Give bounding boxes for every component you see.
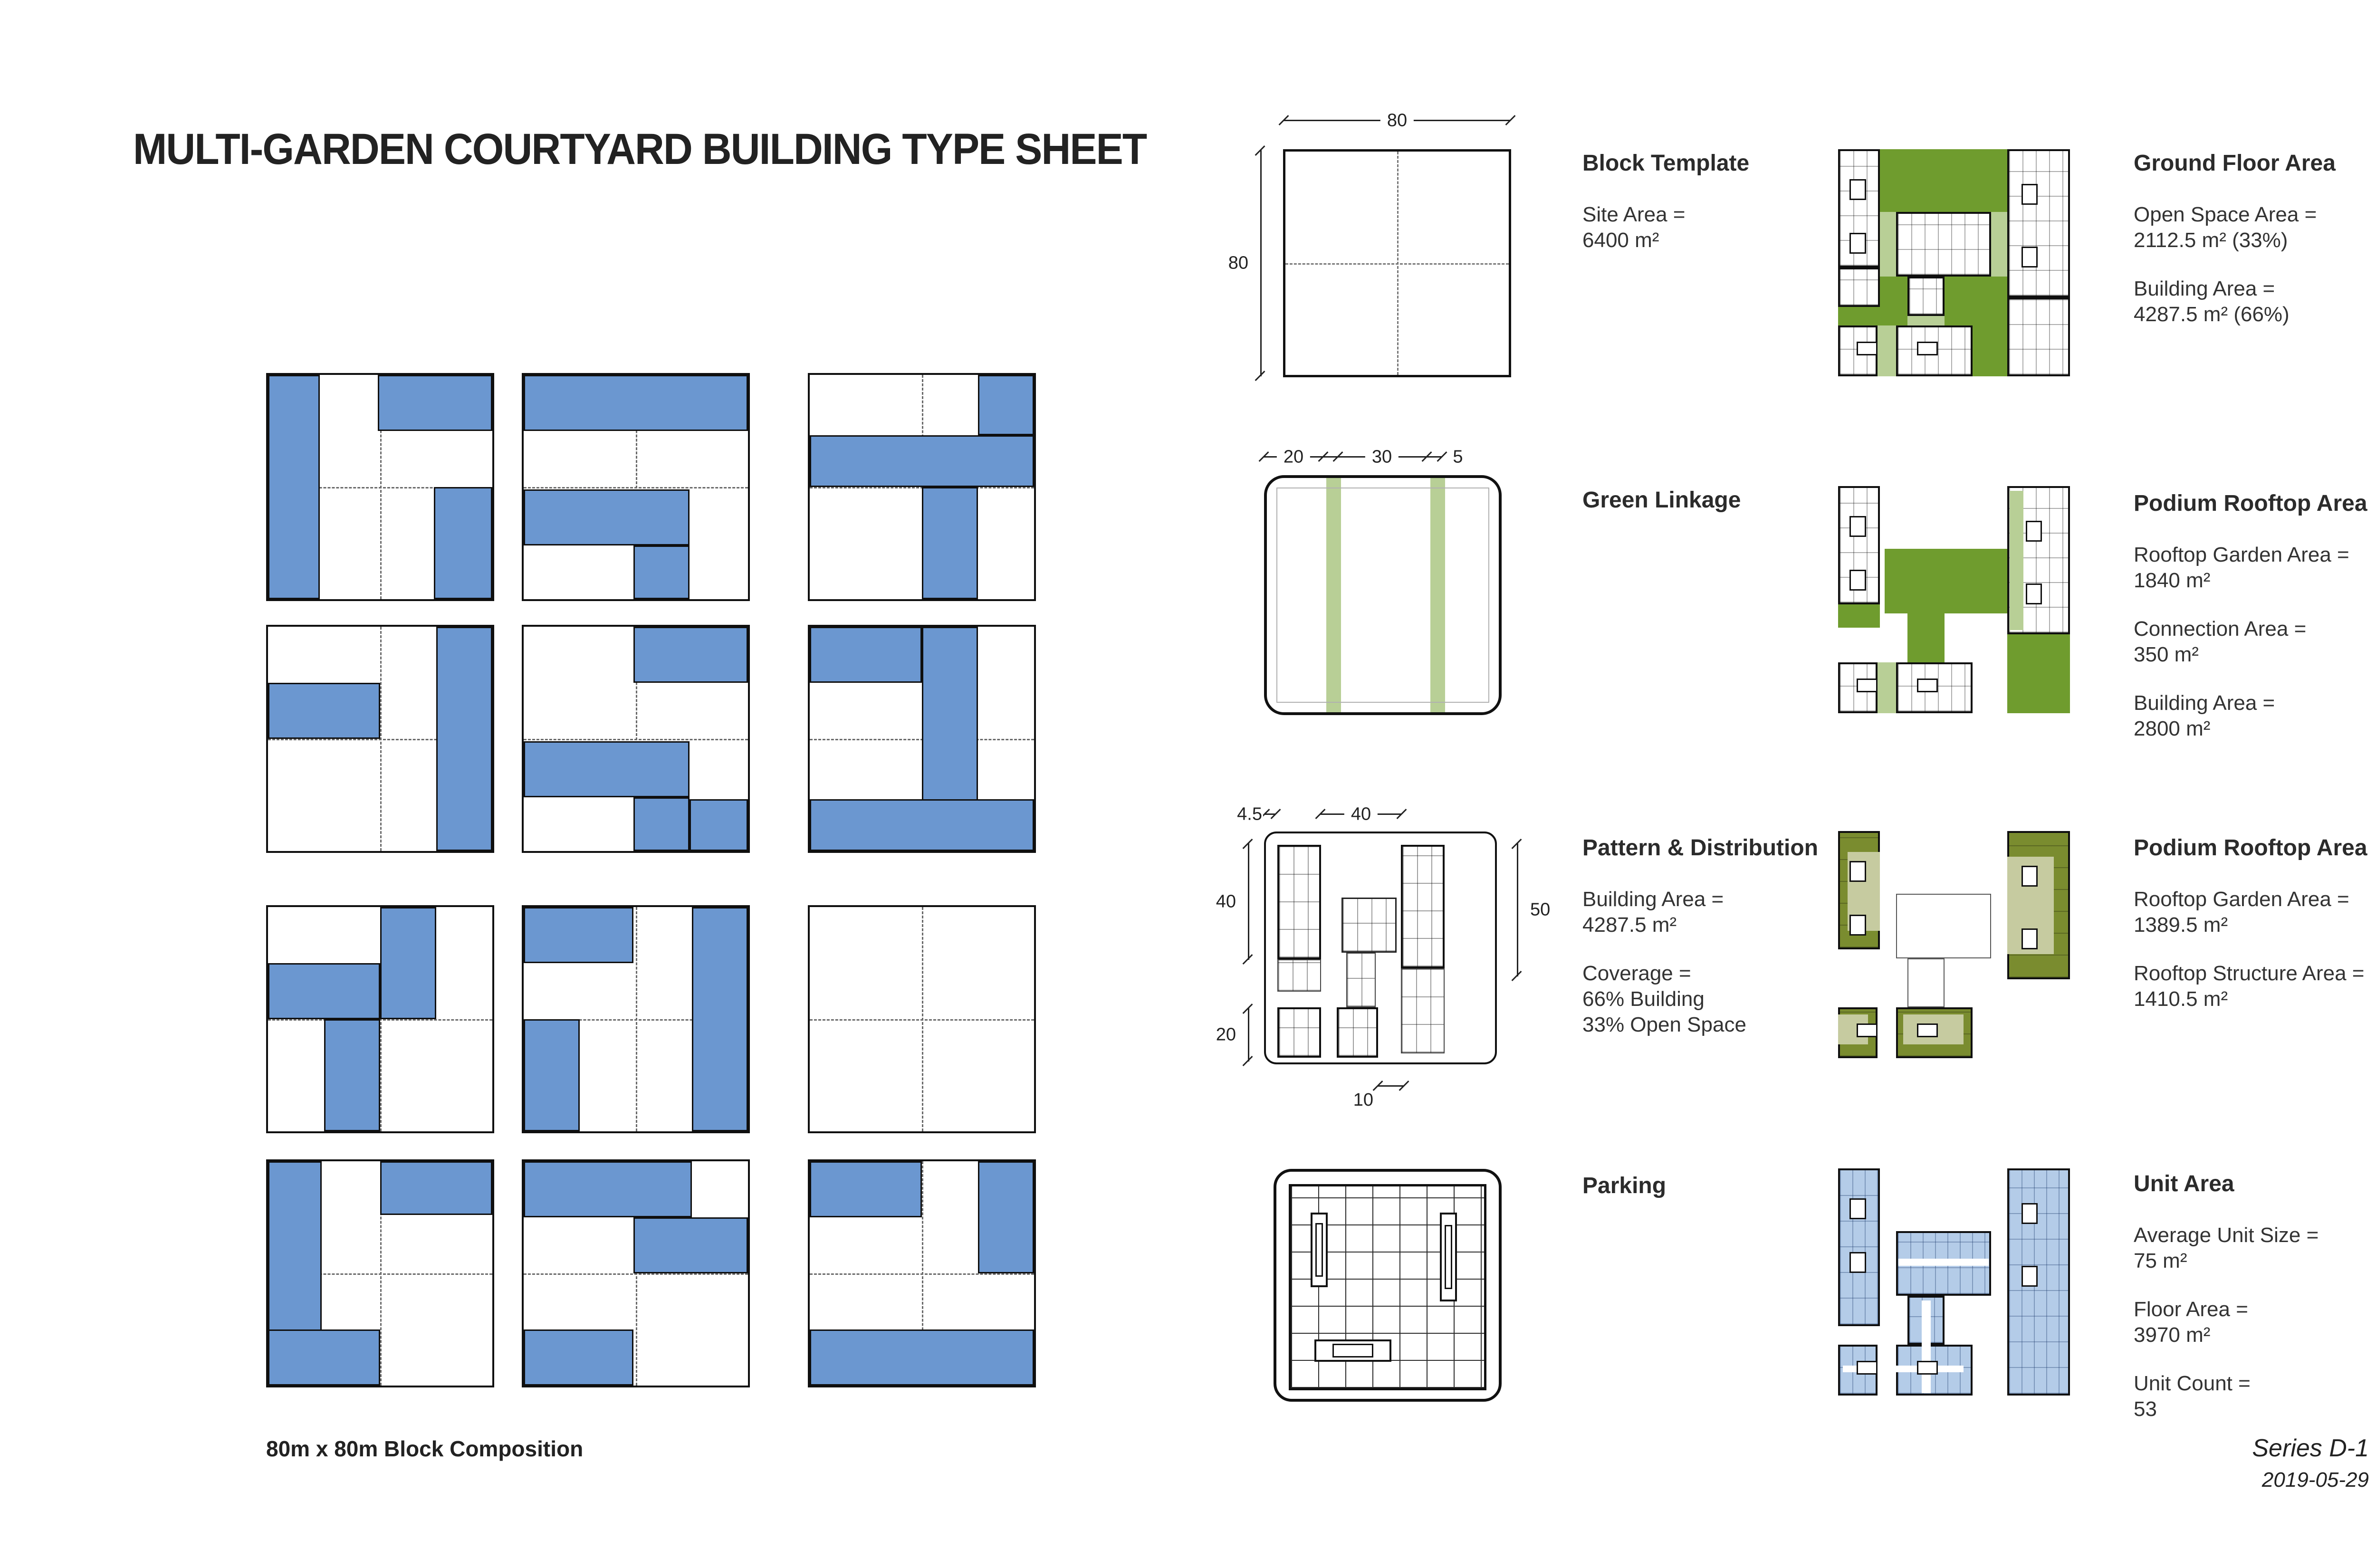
building-footprint	[524, 1161, 692, 1217]
building-footprint	[810, 627, 922, 683]
plan-rect-core	[1917, 342, 1938, 355]
plan-rect-core	[2022, 247, 2038, 268]
dimension-line: 80	[1260, 150, 1262, 376]
panel-title: Podium Rooftop Area	[2134, 490, 2376, 516]
plan-rect-pfb	[1277, 845, 1321, 959]
plan-rect-pft	[1346, 953, 1376, 1008]
building-footprint	[436, 627, 492, 851]
plan-rect-core	[1849, 1252, 1866, 1273]
building-footprint	[434, 487, 492, 599]
dimension-label: 80	[1380, 110, 1414, 131]
text-group: Connection Area =350 m²	[2134, 616, 2376, 668]
plan-rect-core	[2026, 521, 2042, 542]
dimension-line: 20 30 5	[1264, 456, 1442, 458]
plan-rect-pfb	[1401, 845, 1445, 968]
type-sheet: MULTI-GARDEN COURTYARD BUILDING TYPE SHE…	[0, 0, 2376, 1568]
dimension-line: 40	[1321, 813, 1401, 815]
building-footprint	[524, 489, 690, 545]
plan-rect-outline	[1896, 894, 1991, 959]
parking-core-detail	[1445, 1225, 1452, 1290]
parking-core-detail	[1315, 1223, 1323, 1277]
building-footprint	[524, 1019, 580, 1131]
building-footprint	[978, 375, 1034, 435]
block-tile	[266, 905, 494, 1133]
dimension-line: 80	[1284, 120, 1510, 121]
plan-rect-green	[1838, 307, 1880, 325]
plan-rect-sage	[1878, 662, 1896, 713]
composition-label: 80m x 80m Block Composition	[266, 1436, 583, 1462]
plan-rect-green	[2007, 634, 2070, 713]
plan-rect-bldg	[2007, 149, 2070, 297]
text-line: 4287.5 m² (66%)	[2134, 302, 2376, 327]
block-tile	[808, 373, 1036, 601]
building-footprint	[633, 627, 748, 683]
dimension-label: 5	[1446, 447, 1469, 467]
plan-rect-sage	[1991, 212, 2007, 277]
dimension-line: 20	[1248, 1008, 1249, 1061]
plan-rect-core	[1849, 570, 1866, 591]
plan-rect-core	[2026, 583, 2042, 604]
building-footprint	[978, 1161, 1034, 1273]
block-tile	[522, 1159, 750, 1387]
building-footprint	[324, 1019, 380, 1131]
building-footprint	[378, 375, 492, 431]
text-line: 75 m²	[2134, 1248, 2376, 1274]
building-footprint	[633, 545, 690, 599]
building-footprint	[692, 907, 748, 1131]
green-linkage-diagram	[1264, 475, 1502, 715]
plan-rect-core	[2022, 1203, 2038, 1224]
text-group: Unit Count =53	[2134, 1371, 2376, 1422]
building-footprint	[524, 1329, 633, 1386]
dimension-label: 80	[1227, 251, 1249, 276]
plan-rect-green	[1907, 613, 1945, 662]
dimension-label: 10	[1353, 1090, 1378, 1110]
block-tile	[266, 1159, 494, 1387]
plan-rect-core	[1849, 915, 1866, 936]
building-footprint	[810, 799, 1034, 851]
text-group: Building Area =2800 m²	[2134, 690, 2376, 742]
building-footprint	[633, 1217, 748, 1273]
plan-rect-bldg	[1896, 212, 1991, 277]
text-line: 3970 m²	[2134, 1322, 2376, 1348]
text-line: Unit Count =	[2134, 1371, 2376, 1396]
dimension-label: 4.5	[1236, 802, 1263, 826]
parking-core	[1440, 1213, 1457, 1301]
building-footprint	[690, 799, 748, 851]
block-tile	[522, 905, 750, 1133]
dimension-label: 30	[1365, 447, 1399, 467]
building-footprint	[810, 435, 1034, 487]
text-line: Open Space Area =	[2134, 202, 2376, 228]
text-line: Rooftop Garden Area =	[2134, 542, 2376, 568]
text-group: Floor Area =3970 m²	[2134, 1297, 2376, 1348]
text-line: 53	[2134, 1396, 2376, 1422]
plan-rect-core	[1917, 1023, 1938, 1037]
parking-diagram	[1274, 1169, 1502, 1402]
dimension-line: 40	[1248, 843, 1249, 960]
plan-rect-outline	[1907, 958, 1945, 1007]
text-line: 1840 m²	[2134, 568, 2376, 593]
panel-title: Ground Floor Area	[2134, 150, 2376, 176]
center-dashed-line	[524, 739, 748, 740]
building-footprint	[380, 907, 436, 1019]
block-tile	[266, 373, 494, 601]
building-footprint	[524, 741, 690, 797]
dimension-line: 50	[1517, 843, 1518, 976]
text-group: Rooftop Garden Area =1389.5 m²	[2134, 887, 2376, 938]
text-group: Rooftop Garden Area =1840 m²	[2134, 542, 2376, 593]
center-dashed-line	[268, 1019, 492, 1021]
text-line: Floor Area =	[2134, 1297, 2376, 1322]
parking-core	[1311, 1213, 1328, 1287]
block-tile	[808, 905, 1036, 1133]
plan-rect-sage	[1878, 325, 1896, 376]
text-line: Rooftop Structure Area =	[2134, 961, 2376, 986]
date-label: 2019-05-29	[2262, 1468, 2369, 1492]
unit-area-diagram	[1838, 1168, 2070, 1400]
building-footprint	[633, 797, 690, 851]
panel-title: Podium Rooftop Area	[2134, 835, 2376, 861]
building-footprint	[810, 1161, 922, 1217]
plan-rect-core	[2022, 928, 2038, 949]
plan-rect-green	[1838, 604, 1880, 628]
plan-rect-pfm	[1341, 898, 1397, 953]
dimension-line: 4.5	[1265, 813, 1275, 815]
plan-rect-bldg	[2007, 297, 2070, 376]
parking-core-detail	[1332, 1344, 1373, 1358]
text-group: Rooftop Structure Area =1410.5 m²	[2134, 961, 2376, 1012]
block-template-diagram	[1283, 149, 1511, 377]
plan-rect-pft	[1401, 968, 1445, 1053]
plan-rect-blue	[1838, 1168, 1880, 1326]
plan-rect-core	[1857, 1023, 1878, 1037]
text-group: Average Unit Size =75 m²	[2134, 1223, 2376, 1274]
text-line: 2112.5 m² (33%)	[2134, 228, 2376, 253]
dimension-line: 10	[1378, 1085, 1404, 1087]
podium-rooftop-diagram-1	[1838, 486, 2070, 718]
text-line: Building Area =	[2134, 690, 2376, 716]
panel-title: Unit Area	[2134, 1171, 2376, 1197]
plan-rect-sage	[2010, 491, 2023, 630]
plan-rect-wline	[1898, 1259, 1989, 1266]
setback-line	[1276, 488, 1489, 703]
plan-rect-pft	[1277, 959, 1321, 991]
building-footprint	[268, 683, 380, 739]
center-dashed-line	[524, 1273, 748, 1275]
plan-rect-pfb	[1277, 1007, 1321, 1058]
block-tile	[266, 625, 494, 853]
text-line: Building Area =	[2134, 276, 2376, 302]
center-dashed-line	[524, 487, 748, 488]
dimension-label: 20	[1277, 447, 1310, 467]
text-line: Average Unit Size =	[2134, 1223, 2376, 1248]
text-line: 1389.5 m²	[2134, 912, 2376, 938]
building-footprint	[380, 1161, 492, 1215]
text-line: 1410.5 m²	[2134, 986, 2376, 1012]
building-footprint	[268, 1329, 380, 1386]
ground-floor-text: Ground Floor Area Open Space Area =2112.…	[2134, 150, 2376, 350]
center-dashed-line	[810, 1273, 1034, 1275]
series-label: Series D-1	[2252, 1434, 2369, 1463]
building-footprint	[268, 963, 380, 1019]
plan-rect-core	[1857, 1361, 1878, 1375]
dimension-label: 20	[1215, 1023, 1237, 1047]
ground-floor-diagram	[1838, 149, 2070, 381]
plan-rect-green	[1880, 277, 1908, 327]
building-footprint	[524, 375, 748, 431]
page-title: MULTI-GARDEN COURTYARD BUILDING TYPE SHE…	[133, 124, 1146, 174]
block-tile	[808, 625, 1036, 853]
plan-rect-core	[1849, 179, 1866, 200]
text-group: Open Space Area =2112.5 m² (33%)	[2134, 202, 2376, 253]
building-footprint	[524, 907, 633, 963]
podium-rooftop-text-2: Podium Rooftop Area Rooftop Garden Area …	[2134, 835, 2376, 1035]
block-tile	[808, 1159, 1036, 1387]
plan-rect-bldg	[1838, 268, 1880, 307]
text-line: 2800 m²	[2134, 716, 2376, 742]
podium-rooftop-diagram-2	[1838, 831, 2070, 1063]
plan-rect-core	[1849, 1198, 1866, 1219]
plan-rect-bldg	[1907, 277, 1945, 316]
unit-area-text: Unit Area Average Unit Size =75 m²Floor …	[2134, 1171, 2376, 1445]
parking-grid	[1289, 1184, 1486, 1390]
plan-rect-blue	[2007, 1168, 2070, 1396]
pattern-distribution-diagram	[1264, 832, 1497, 1064]
plan-rect-pfb	[1337, 1007, 1378, 1058]
building-footprint	[810, 1329, 1034, 1386]
plan-rect-core	[1857, 679, 1878, 692]
dimension-label: 40	[1215, 889, 1237, 914]
plan-rect-core	[1917, 679, 1938, 692]
plan-rect-core	[1849, 516, 1866, 537]
center-dashed-line	[810, 1019, 1034, 1021]
dimension-label: 40	[1344, 804, 1378, 824]
podium-rooftop-text-1: Podium Rooftop Area Rooftop Garden Area …	[2134, 490, 2376, 765]
plan-rect-green	[1885, 549, 2008, 614]
dimension-label: 50	[1529, 898, 1551, 922]
building-footprint	[922, 487, 978, 599]
text-group: Building Area =4287.5 m² (66%)	[2134, 276, 2376, 327]
plan-rect-sage	[1880, 212, 1896, 277]
plan-rect-core	[1849, 861, 1866, 882]
plan-rect-core	[2022, 1266, 2038, 1287]
plan-rect-core	[2022, 866, 2038, 887]
plan-rect-core	[1849, 233, 1866, 254]
text-line: Rooftop Garden Area =	[2134, 887, 2376, 912]
plan-rect-wline	[1922, 1300, 1931, 1393]
plan-rect-core	[1857, 342, 1878, 355]
text-line: Connection Area =	[2134, 616, 2376, 642]
center-dashed-line	[1285, 263, 1509, 265]
plan-rect-green	[1880, 149, 2007, 212]
building-footprint	[268, 375, 320, 599]
block-tile	[522, 625, 750, 853]
text-line: 350 m²	[2134, 642, 2376, 668]
plan-rect-core	[2022, 184, 2038, 205]
parking-core	[1314, 1339, 1391, 1362]
plan-rect-core	[1917, 1361, 1938, 1375]
block-tile	[522, 373, 750, 601]
